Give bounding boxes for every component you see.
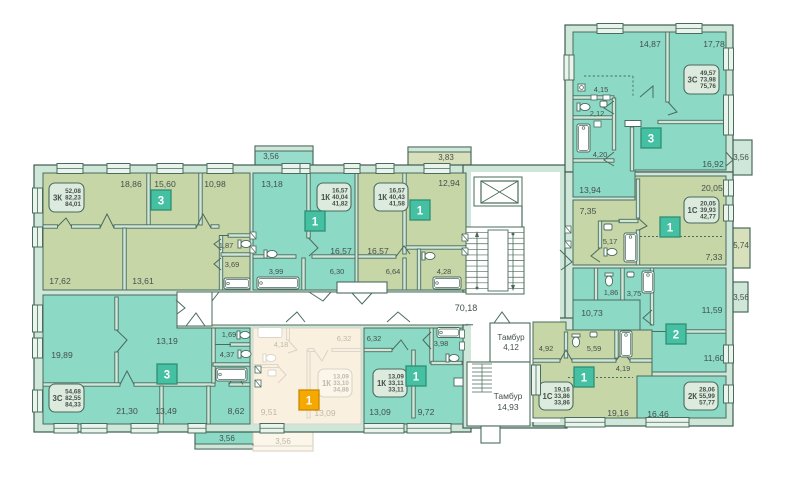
- svg-text:16,57: 16,57: [367, 246, 389, 256]
- svg-text:11,59: 11,59: [702, 305, 723, 315]
- svg-text:1: 1: [667, 223, 674, 235]
- svg-text:1С: 1С: [543, 392, 553, 401]
- svg-text:2,12: 2,12: [590, 109, 605, 118]
- svg-text:6,32: 6,32: [337, 334, 352, 343]
- svg-text:3,56: 3,56: [275, 437, 291, 446]
- svg-text:3С: 3С: [53, 394, 63, 403]
- svg-text:1,86: 1,86: [604, 288, 619, 297]
- svg-text:19,89: 19,89: [51, 350, 73, 360]
- svg-text:4,92: 4,92: [539, 344, 554, 353]
- svg-text:5,74: 5,74: [733, 241, 749, 250]
- svg-text:33,86: 33,86: [554, 400, 570, 407]
- svg-text:13,19: 13,19: [156, 336, 178, 346]
- svg-text:14,93: 14,93: [497, 402, 519, 412]
- svg-text:Тамбур: Тамбур: [497, 333, 525, 342]
- svg-text:1К: 1К: [321, 193, 330, 202]
- svg-text:3,56: 3,56: [733, 293, 749, 302]
- svg-text:75,76: 75,76: [700, 83, 716, 90]
- svg-text:3,56: 3,56: [219, 434, 235, 443]
- svg-text:Тамбур: Тамбур: [494, 391, 523, 401]
- svg-text:3,75: 3,75: [627, 289, 642, 298]
- svg-text:19,16: 19,16: [607, 408, 629, 418]
- svg-text:3,98: 3,98: [434, 339, 449, 348]
- svg-text:1: 1: [413, 372, 420, 384]
- svg-text:1С: 1С: [688, 206, 698, 215]
- svg-text:6,30: 6,30: [330, 267, 345, 276]
- svg-text:1: 1: [417, 206, 424, 218]
- svg-text:4,28: 4,28: [437, 267, 452, 276]
- svg-text:7,35: 7,35: [580, 206, 597, 216]
- svg-text:13,09: 13,09: [369, 407, 391, 417]
- svg-text:4,12: 4,12: [503, 343, 519, 352]
- svg-text:13,49: 13,49: [155, 406, 177, 416]
- svg-text:1,87: 1,87: [219, 241, 234, 250]
- svg-text:4,37: 4,37: [220, 350, 235, 359]
- svg-text:42,77: 42,77: [700, 214, 716, 221]
- svg-text:16,92: 16,92: [702, 159, 724, 169]
- svg-text:1: 1: [312, 217, 319, 229]
- svg-text:4,20: 4,20: [593, 150, 608, 159]
- svg-text:13,18: 13,18: [261, 179, 283, 189]
- svg-text:6,32: 6,32: [367, 334, 382, 343]
- svg-text:10,73: 10,73: [581, 308, 603, 318]
- svg-text:41,58: 41,58: [389, 201, 405, 208]
- svg-text:1К: 1К: [378, 193, 387, 202]
- svg-text:3,83: 3,83: [438, 153, 454, 162]
- svg-text:21,30: 21,30: [116, 406, 138, 416]
- svg-text:3,69: 3,69: [225, 260, 240, 269]
- svg-text:7,33: 7,33: [706, 252, 723, 262]
- svg-text:6,64: 6,64: [386, 267, 401, 276]
- svg-text:1К: 1К: [377, 379, 386, 388]
- svg-text:11,60: 11,60: [704, 353, 725, 363]
- svg-text:3К: 3К: [53, 194, 62, 203]
- svg-text:10,98: 10,98: [204, 179, 226, 189]
- svg-text:4,15: 4,15: [594, 85, 609, 94]
- svg-text:9,51: 9,51: [261, 407, 278, 417]
- svg-text:13,94: 13,94: [579, 185, 601, 195]
- svg-text:17,78: 17,78: [703, 39, 725, 49]
- svg-text:1,69: 1,69: [222, 330, 237, 339]
- svg-text:57,77: 57,77: [699, 400, 715, 407]
- svg-text:9,72: 9,72: [418, 407, 435, 417]
- svg-text:3,56: 3,56: [733, 153, 749, 162]
- svg-text:84,33: 84,33: [65, 402, 81, 409]
- svg-text:33,11: 33,11: [388, 387, 404, 394]
- svg-text:3,99: 3,99: [269, 267, 284, 276]
- svg-text:1: 1: [581, 373, 588, 385]
- svg-text:3: 3: [648, 134, 654, 146]
- svg-text:3: 3: [158, 196, 164, 208]
- svg-text:13,61: 13,61: [132, 276, 154, 286]
- svg-text:2К: 2К: [688, 392, 697, 401]
- svg-text:41,82: 41,82: [332, 201, 348, 208]
- svg-text:12,94: 12,94: [438, 178, 460, 188]
- svg-text:1К: 1К: [322, 379, 331, 388]
- svg-text:2: 2: [673, 330, 679, 342]
- svg-text:3,56: 3,56: [263, 152, 279, 161]
- svg-text:20,05: 20,05: [701, 183, 723, 193]
- svg-text:70,18: 70,18: [455, 303, 478, 313]
- svg-text:17,62: 17,62: [49, 276, 71, 286]
- svg-text:3С: 3С: [688, 76, 698, 85]
- svg-text:84,01: 84,01: [65, 201, 81, 208]
- svg-text:3: 3: [164, 370, 170, 382]
- svg-text:4,18: 4,18: [274, 340, 289, 349]
- svg-text:34,88: 34,88: [333, 387, 349, 394]
- svg-text:15,60: 15,60: [154, 179, 176, 189]
- svg-text:14,87: 14,87: [639, 39, 661, 49]
- svg-text:1: 1: [306, 396, 313, 408]
- svg-text:4,19: 4,19: [616, 364, 631, 373]
- svg-text:5,59: 5,59: [587, 344, 602, 353]
- svg-text:5,17: 5,17: [603, 237, 618, 246]
- svg-text:16,57: 16,57: [330, 246, 352, 256]
- svg-text:18,86: 18,86: [120, 179, 142, 189]
- svg-text:8,62: 8,62: [228, 406, 245, 416]
